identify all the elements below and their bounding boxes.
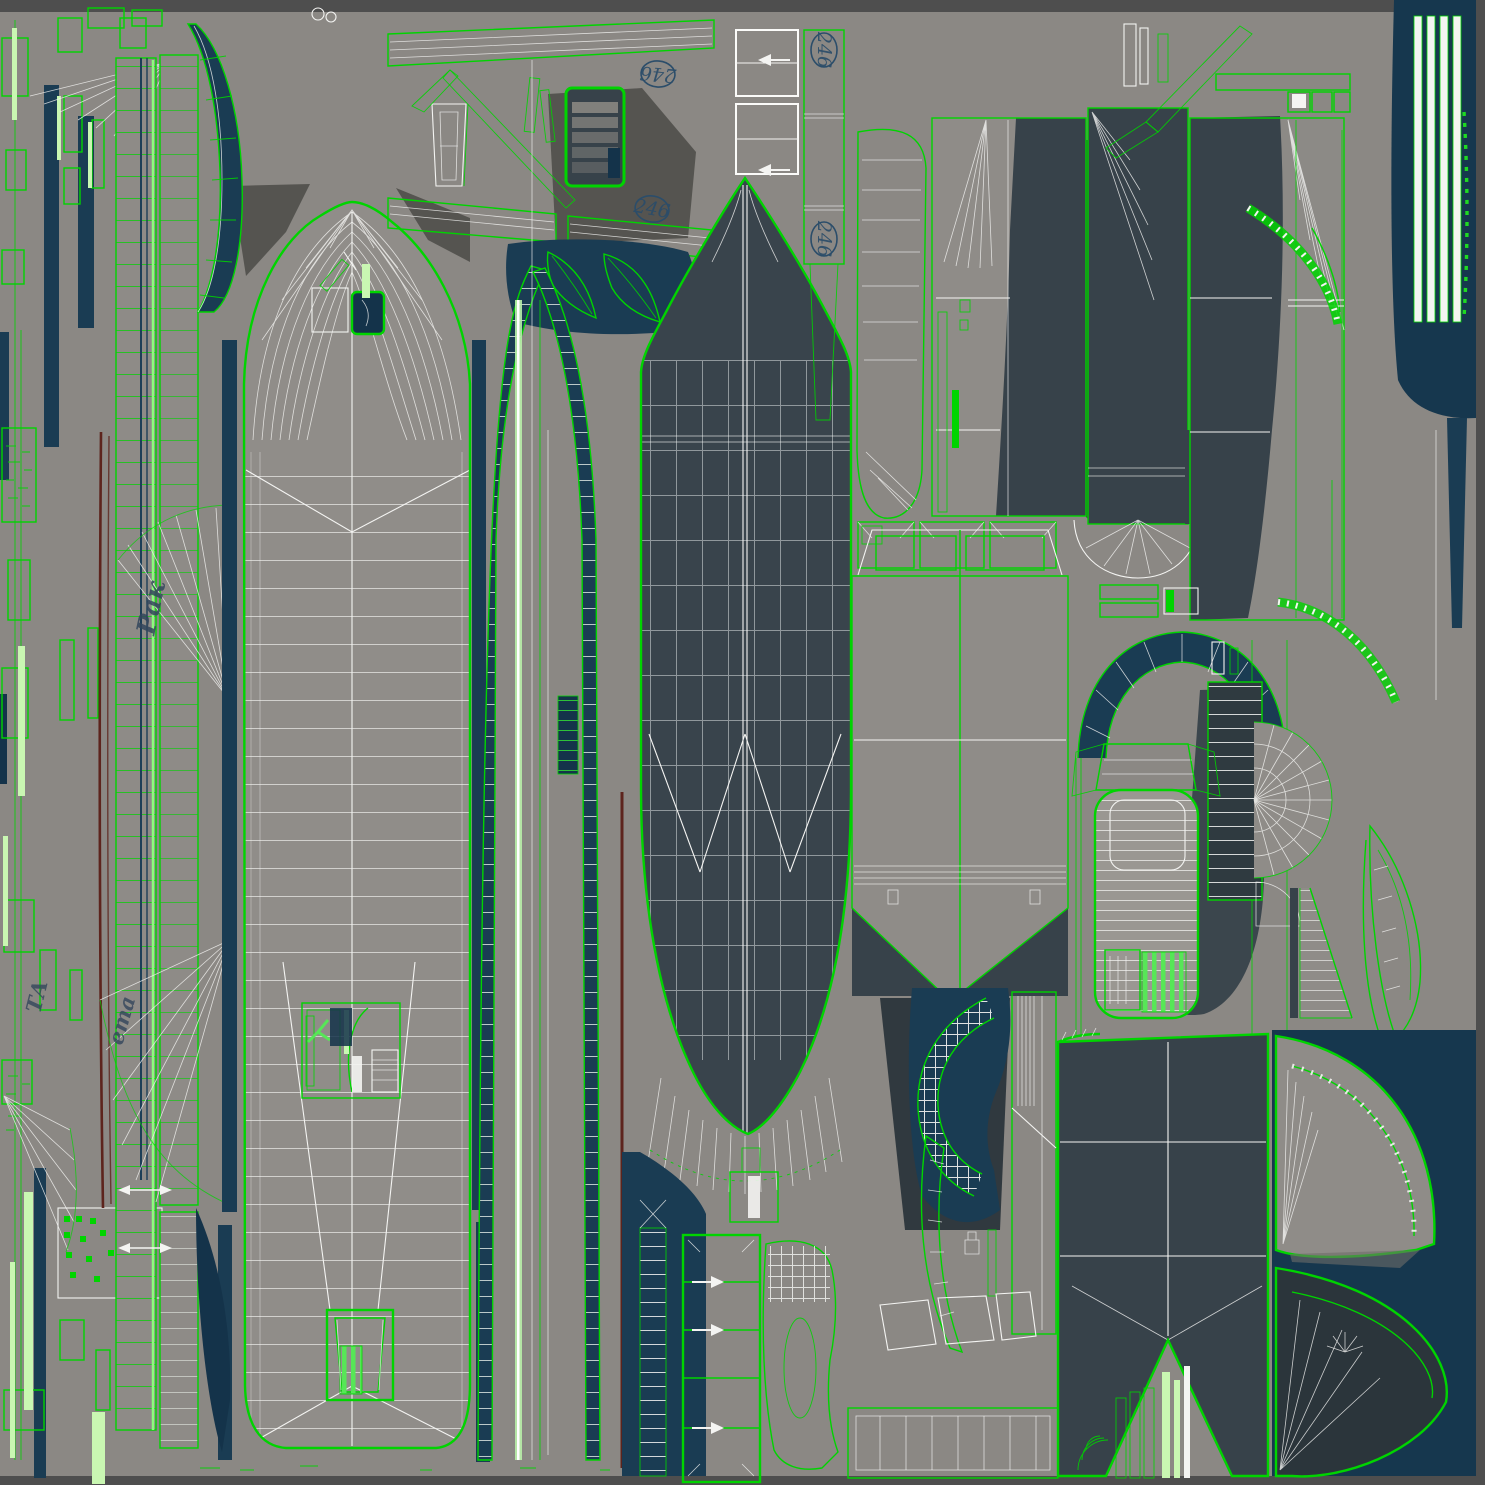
uv-island-stairs-box	[566, 88, 624, 186]
bottom-right-field	[1058, 1028, 1476, 1478]
stamp-label: 246	[813, 220, 835, 257]
viewport-frame-bottom	[0, 1476, 1485, 1485]
uv-island-top-rect	[932, 118, 1086, 516]
uv-island-panel-1	[1074, 108, 1200, 578]
uv-texture-atlas: 246 246 246 246 Рак ета ТА	[0, 0, 1485, 1485]
viewport-frame-right	[1476, 0, 1485, 1485]
uv-island-panel-2	[1185, 116, 1344, 620]
uv-island-funnel-body	[852, 530, 1068, 998]
texture-canvas: 246 246 246 246 Рак ета ТА	[0, 0, 1485, 1485]
stamp-246: 246	[811, 31, 837, 68]
stamp-246: 246	[811, 220, 837, 257]
stamp-label: 246	[813, 31, 835, 68]
viewport-frame-top	[0, 0, 1485, 12]
navy-sliver	[222, 340, 237, 1212]
stamp-label: 246	[639, 61, 678, 86]
